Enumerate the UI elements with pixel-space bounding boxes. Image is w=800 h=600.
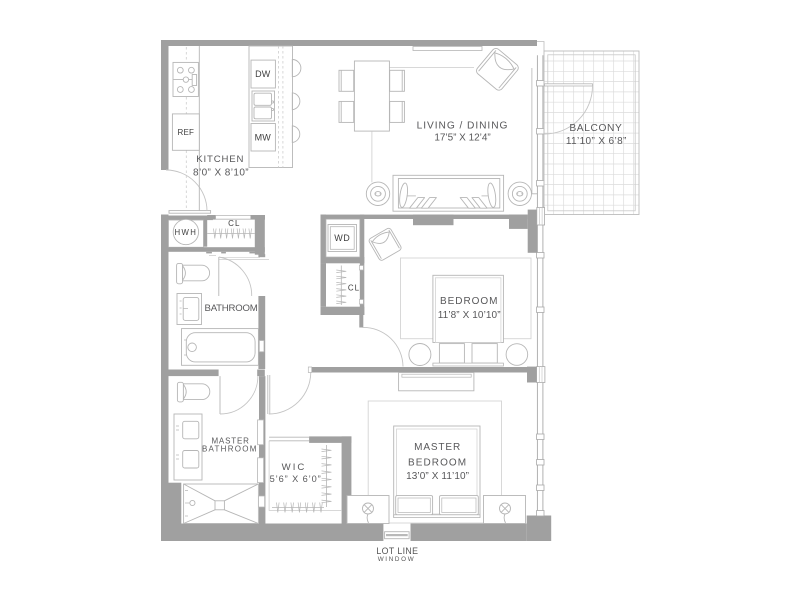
svg-text:BATHROOM: BATHROOM	[205, 303, 258, 314]
svg-text:WD: WD	[334, 233, 350, 243]
svg-text:8’0” X 8’10”: 8’0” X 8’10”	[193, 168, 249, 179]
svg-text:HWH: HWH	[174, 228, 197, 237]
svg-text:LOT LINE: LOT LINE	[376, 546, 418, 556]
svg-text:BEDROOM: BEDROOM	[440, 296, 498, 307]
svg-text:11’10” X 6’8”: 11’10” X 6’8”	[566, 136, 627, 147]
svg-text:13’0” X 11’10”: 13’0” X 11’10”	[406, 471, 469, 482]
svg-text:CL: CL	[228, 219, 240, 228]
svg-text:MASTER: MASTER	[414, 442, 461, 453]
svg-text:11’8” X 10’10”: 11’8” X 10’10”	[438, 310, 501, 321]
svg-text:WINDOW: WINDOW	[378, 556, 416, 563]
svg-text:5’6” X 6’0”: 5’6” X 6’0”	[270, 474, 322, 484]
svg-text:DW: DW	[255, 69, 271, 79]
svg-text:MW: MW	[255, 132, 272, 142]
svg-text:LIVING / DINING: LIVING / DINING	[417, 120, 509, 131]
svg-text:BATHROOM: BATHROOM	[202, 445, 258, 454]
svg-text:BEDROOM: BEDROOM	[408, 457, 467, 468]
svg-text:KITCHEN: KITCHEN	[196, 154, 244, 165]
svg-text:REF: REF	[177, 128, 194, 137]
svg-text:BALCONY: BALCONY	[569, 123, 622, 134]
svg-text:17’5” X 12’4”: 17’5” X 12’4”	[434, 132, 490, 143]
svg-text:CL: CL	[348, 284, 360, 293]
svg-text:WIC: WIC	[282, 462, 307, 473]
